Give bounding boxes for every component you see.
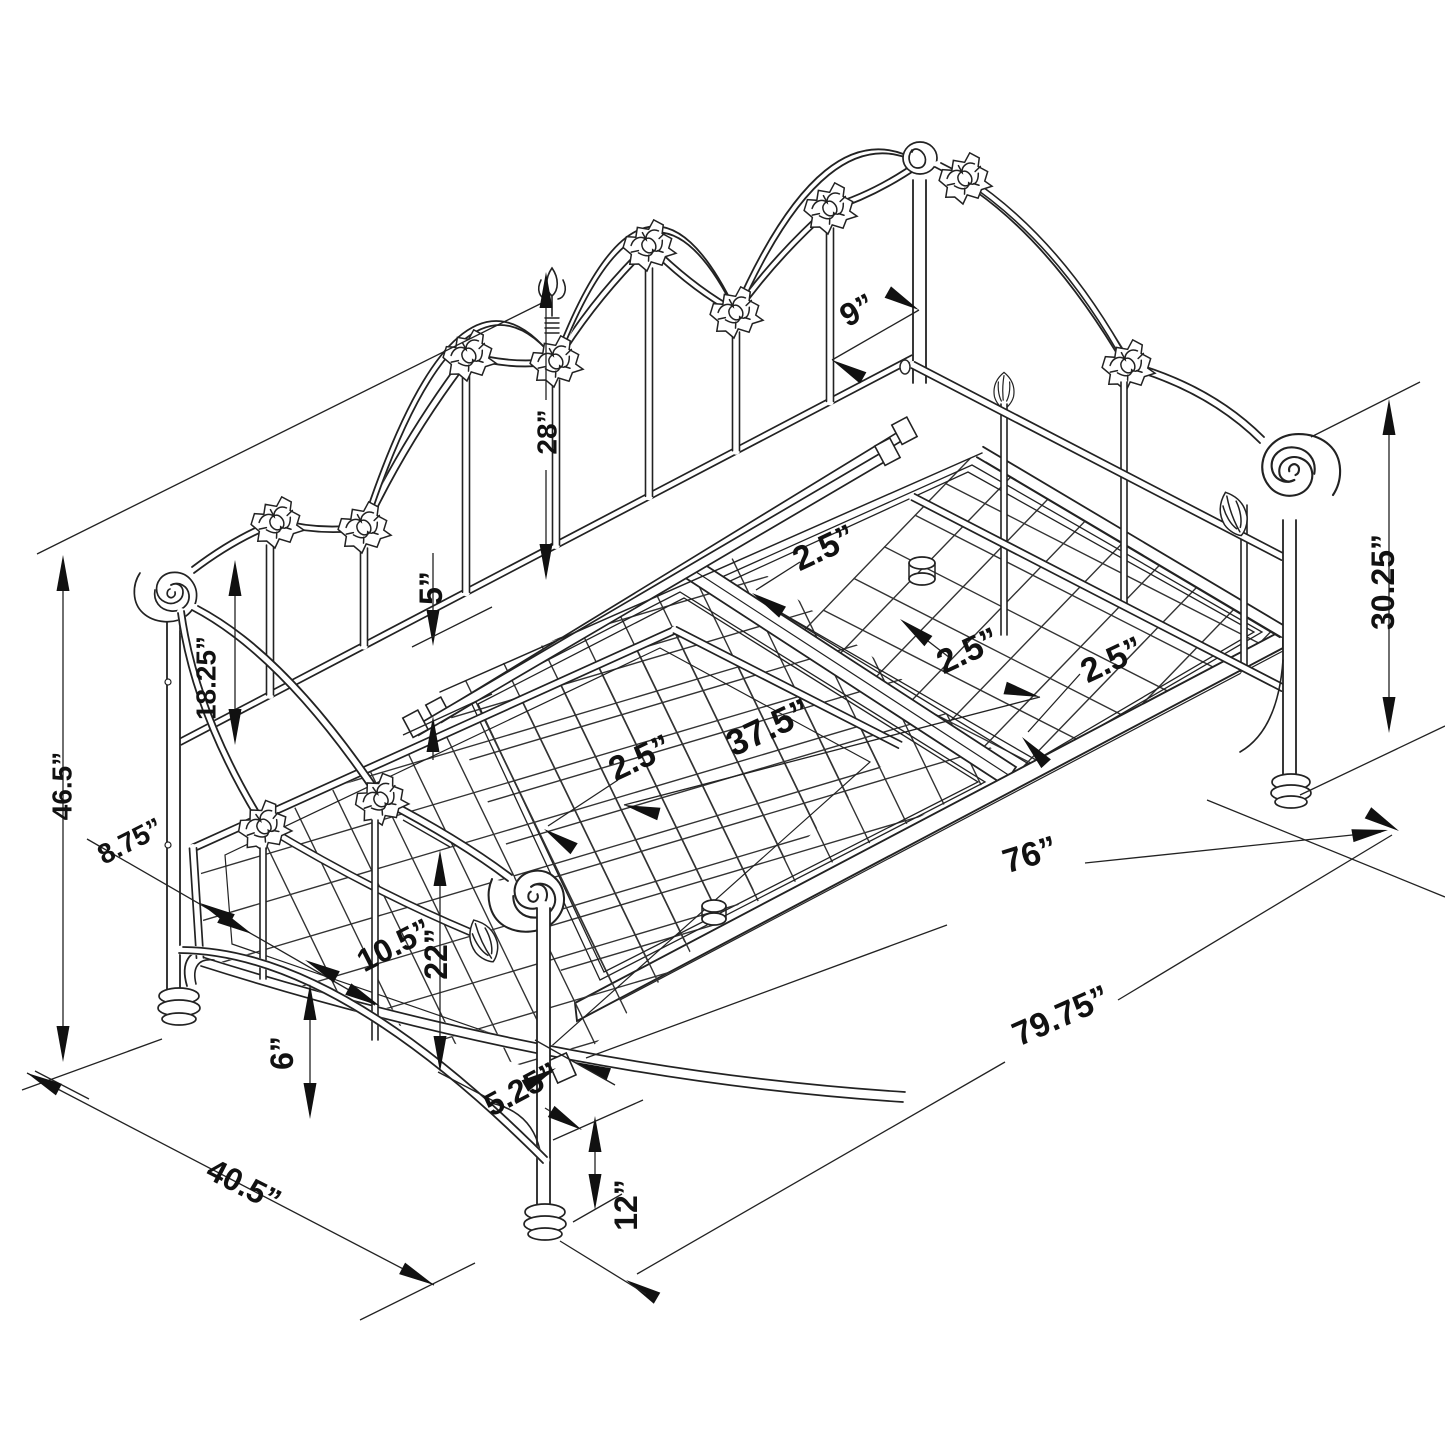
svg-text:22”: 22” (418, 928, 454, 980)
svg-text:18.25”: 18.25” (191, 636, 222, 720)
svg-text:12”: 12” (608, 1179, 644, 1231)
svg-text:30.25”: 30.25” (1365, 534, 1401, 630)
svg-text:28”: 28” (532, 409, 563, 454)
svg-text:5”: 5” (413, 571, 449, 605)
svg-text:6”: 6” (264, 1036, 300, 1070)
svg-text:46.5”: 46.5” (47, 752, 78, 821)
